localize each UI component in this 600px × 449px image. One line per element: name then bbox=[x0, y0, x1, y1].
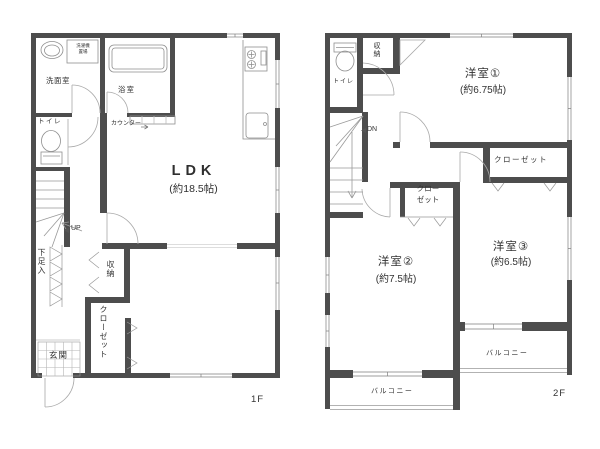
dn-label: DN bbox=[367, 126, 377, 133]
storage-label-2f: 収納 bbox=[373, 42, 380, 58]
balcony-label-room3: バルコニー bbox=[486, 350, 528, 357]
counter-label: カウンター bbox=[111, 121, 141, 127]
toilet-icon-2f bbox=[336, 51, 354, 71]
room2-size-label: (約7.5帖) bbox=[352, 275, 440, 285]
entrance-label: 玄関 bbox=[49, 351, 68, 360]
shoe-cabinet-label: 下足入 bbox=[37, 248, 45, 275]
stairs-1f bbox=[36, 181, 82, 247]
closet-label-1f: クローゼット bbox=[99, 305, 107, 359]
closet-label-room2-line1: クロー bbox=[412, 184, 444, 195]
balcony-label-room2: バルコニー bbox=[371, 388, 413, 395]
room3-size-label: (約6.5帖) bbox=[466, 258, 556, 268]
windows-1f bbox=[170, 33, 280, 378]
closet-label-room2-line2: ゼット bbox=[412, 195, 444, 206]
floor-plan-page: 洗面室 洗濯機 置場 浴室 カウンター LDK (約18.5帖) トイレ UP … bbox=[0, 0, 600, 449]
shoe-cabinet-icon bbox=[50, 245, 62, 307]
fixtures-2f bbox=[334, 43, 356, 71]
ldk-size-label: (約18.5帖) bbox=[146, 184, 241, 195]
fixtures-1f bbox=[41, 40, 275, 164]
storage-label-1f: 収納 bbox=[106, 260, 114, 278]
room1-label: 洋室① bbox=[449, 69, 517, 81]
floor-plan-drawing bbox=[0, 0, 600, 449]
floor1-label: 1F bbox=[251, 395, 264, 405]
stairs-2f bbox=[330, 116, 363, 204]
toilet-label-1f: トイレ bbox=[38, 119, 62, 126]
washroom-label: 洗面室 bbox=[46, 77, 70, 85]
closet-label-room2: クロー ゼット bbox=[412, 184, 444, 206]
toilet-label-2f: トイレ bbox=[333, 79, 354, 85]
ldk-label: LDK bbox=[158, 164, 230, 179]
bathtub-icon bbox=[109, 45, 167, 72]
closet-label-room3: クローゼット bbox=[494, 156, 548, 164]
plan-1f bbox=[31, 33, 280, 407]
room1-size-label: (約6.75帖) bbox=[437, 86, 529, 96]
floor2-label: 2F bbox=[553, 389, 566, 399]
up-label: UP bbox=[71, 225, 81, 232]
room2-label: 洋室② bbox=[362, 257, 430, 269]
bath-label: 浴室 bbox=[118, 86, 135, 94]
laundry-label-line2: 置場 bbox=[69, 49, 97, 55]
toilet-icon-1f bbox=[42, 131, 61, 152]
laundry-label: 洗濯機 置場 bbox=[69, 43, 97, 55]
room3-label: 洋室③ bbox=[477, 242, 545, 254]
